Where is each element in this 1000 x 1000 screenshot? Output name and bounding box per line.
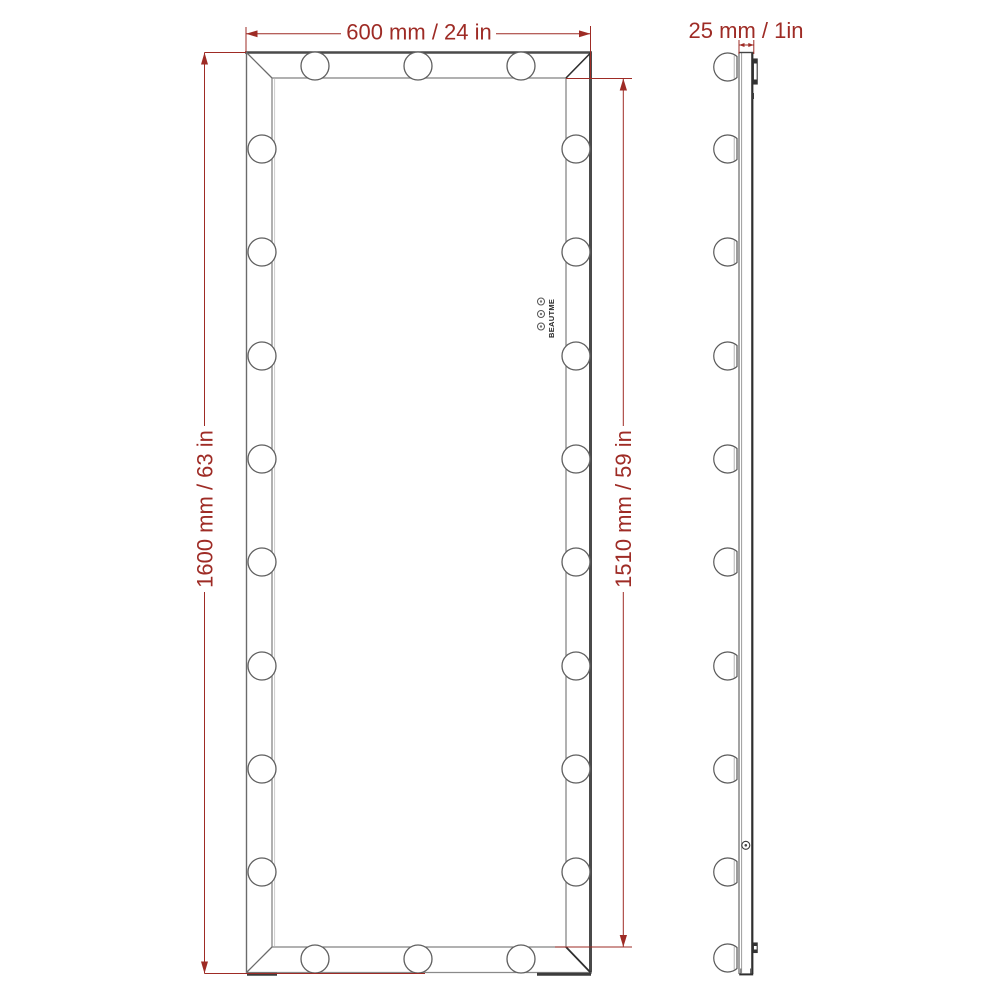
miter-top-right [566,53,591,78]
bracket-clip [753,943,757,946]
bulb [248,238,276,266]
depth-dimension-label: 25 mm / 1in [689,18,804,43]
bulb [507,945,535,973]
bulb [562,755,590,783]
bracket-tab [752,93,754,99]
inner-height-dimension-label: 1510 mm / 59 in [611,430,636,588]
bulb [248,858,276,886]
mirror-dimension-diagram: BEAUTME [0,0,1000,1000]
side-view [714,52,757,974]
miter-bottom-left [247,947,273,973]
bulb [248,548,276,576]
bulb [562,342,590,370]
bulb-side [714,342,737,370]
bulb-side [714,858,737,886]
bulb [248,652,276,680]
bracket-clip [753,950,757,953]
bulb [404,52,432,80]
bulb [301,945,329,973]
bulbs-side [714,53,737,972]
bracket-clip [753,80,757,85]
control-button-dot-icon [540,325,542,327]
bulb [301,52,329,80]
mounting-bracket-bottom [753,943,757,953]
dimension-inner-height: 1510 mm / 59 in [555,79,636,948]
width-dimension-label: 600 mm / 24 in [346,20,492,45]
diagram-canvas: BEAUTME [0,0,1000,1000]
bulb [562,858,590,886]
bulb [562,548,590,576]
miter-top-left [247,53,273,79]
control-button-dot-icon [540,300,542,302]
control-button-dot-icon [540,313,542,315]
bulb [248,135,276,163]
bulb-side [714,548,737,576]
bulb-side [714,445,737,473]
frame-inner-rect [272,78,566,947]
screw-icon [742,841,750,849]
bulb [248,755,276,783]
dimension-height: 1600 mm / 63 in [193,53,426,974]
bulb-side [714,135,737,163]
bulb [404,945,432,973]
bracket-clip [753,59,757,64]
bulb [562,445,590,473]
miter-bottom-right [566,947,591,973]
bulb [562,135,590,163]
side-bottom-cap [739,969,753,975]
bulb-side [714,53,737,81]
brand-logo-group: BEAUTME [538,298,557,338]
bulb-side [714,238,737,266]
bulb-side [714,652,737,680]
bulb [248,342,276,370]
height-dimension-label: 1600 mm / 63 in [193,430,218,588]
bulb [562,238,590,266]
bulb [562,652,590,680]
front-view: BEAUTME [245,52,592,974]
bulb [507,52,535,80]
bulb-side [714,755,737,783]
dimension-depth: 25 mm / 1in [689,18,804,54]
bulb [248,445,276,473]
bulbs-front [248,52,590,973]
bulb-side [714,944,737,972]
brand-name: BEAUTME [547,299,556,338]
